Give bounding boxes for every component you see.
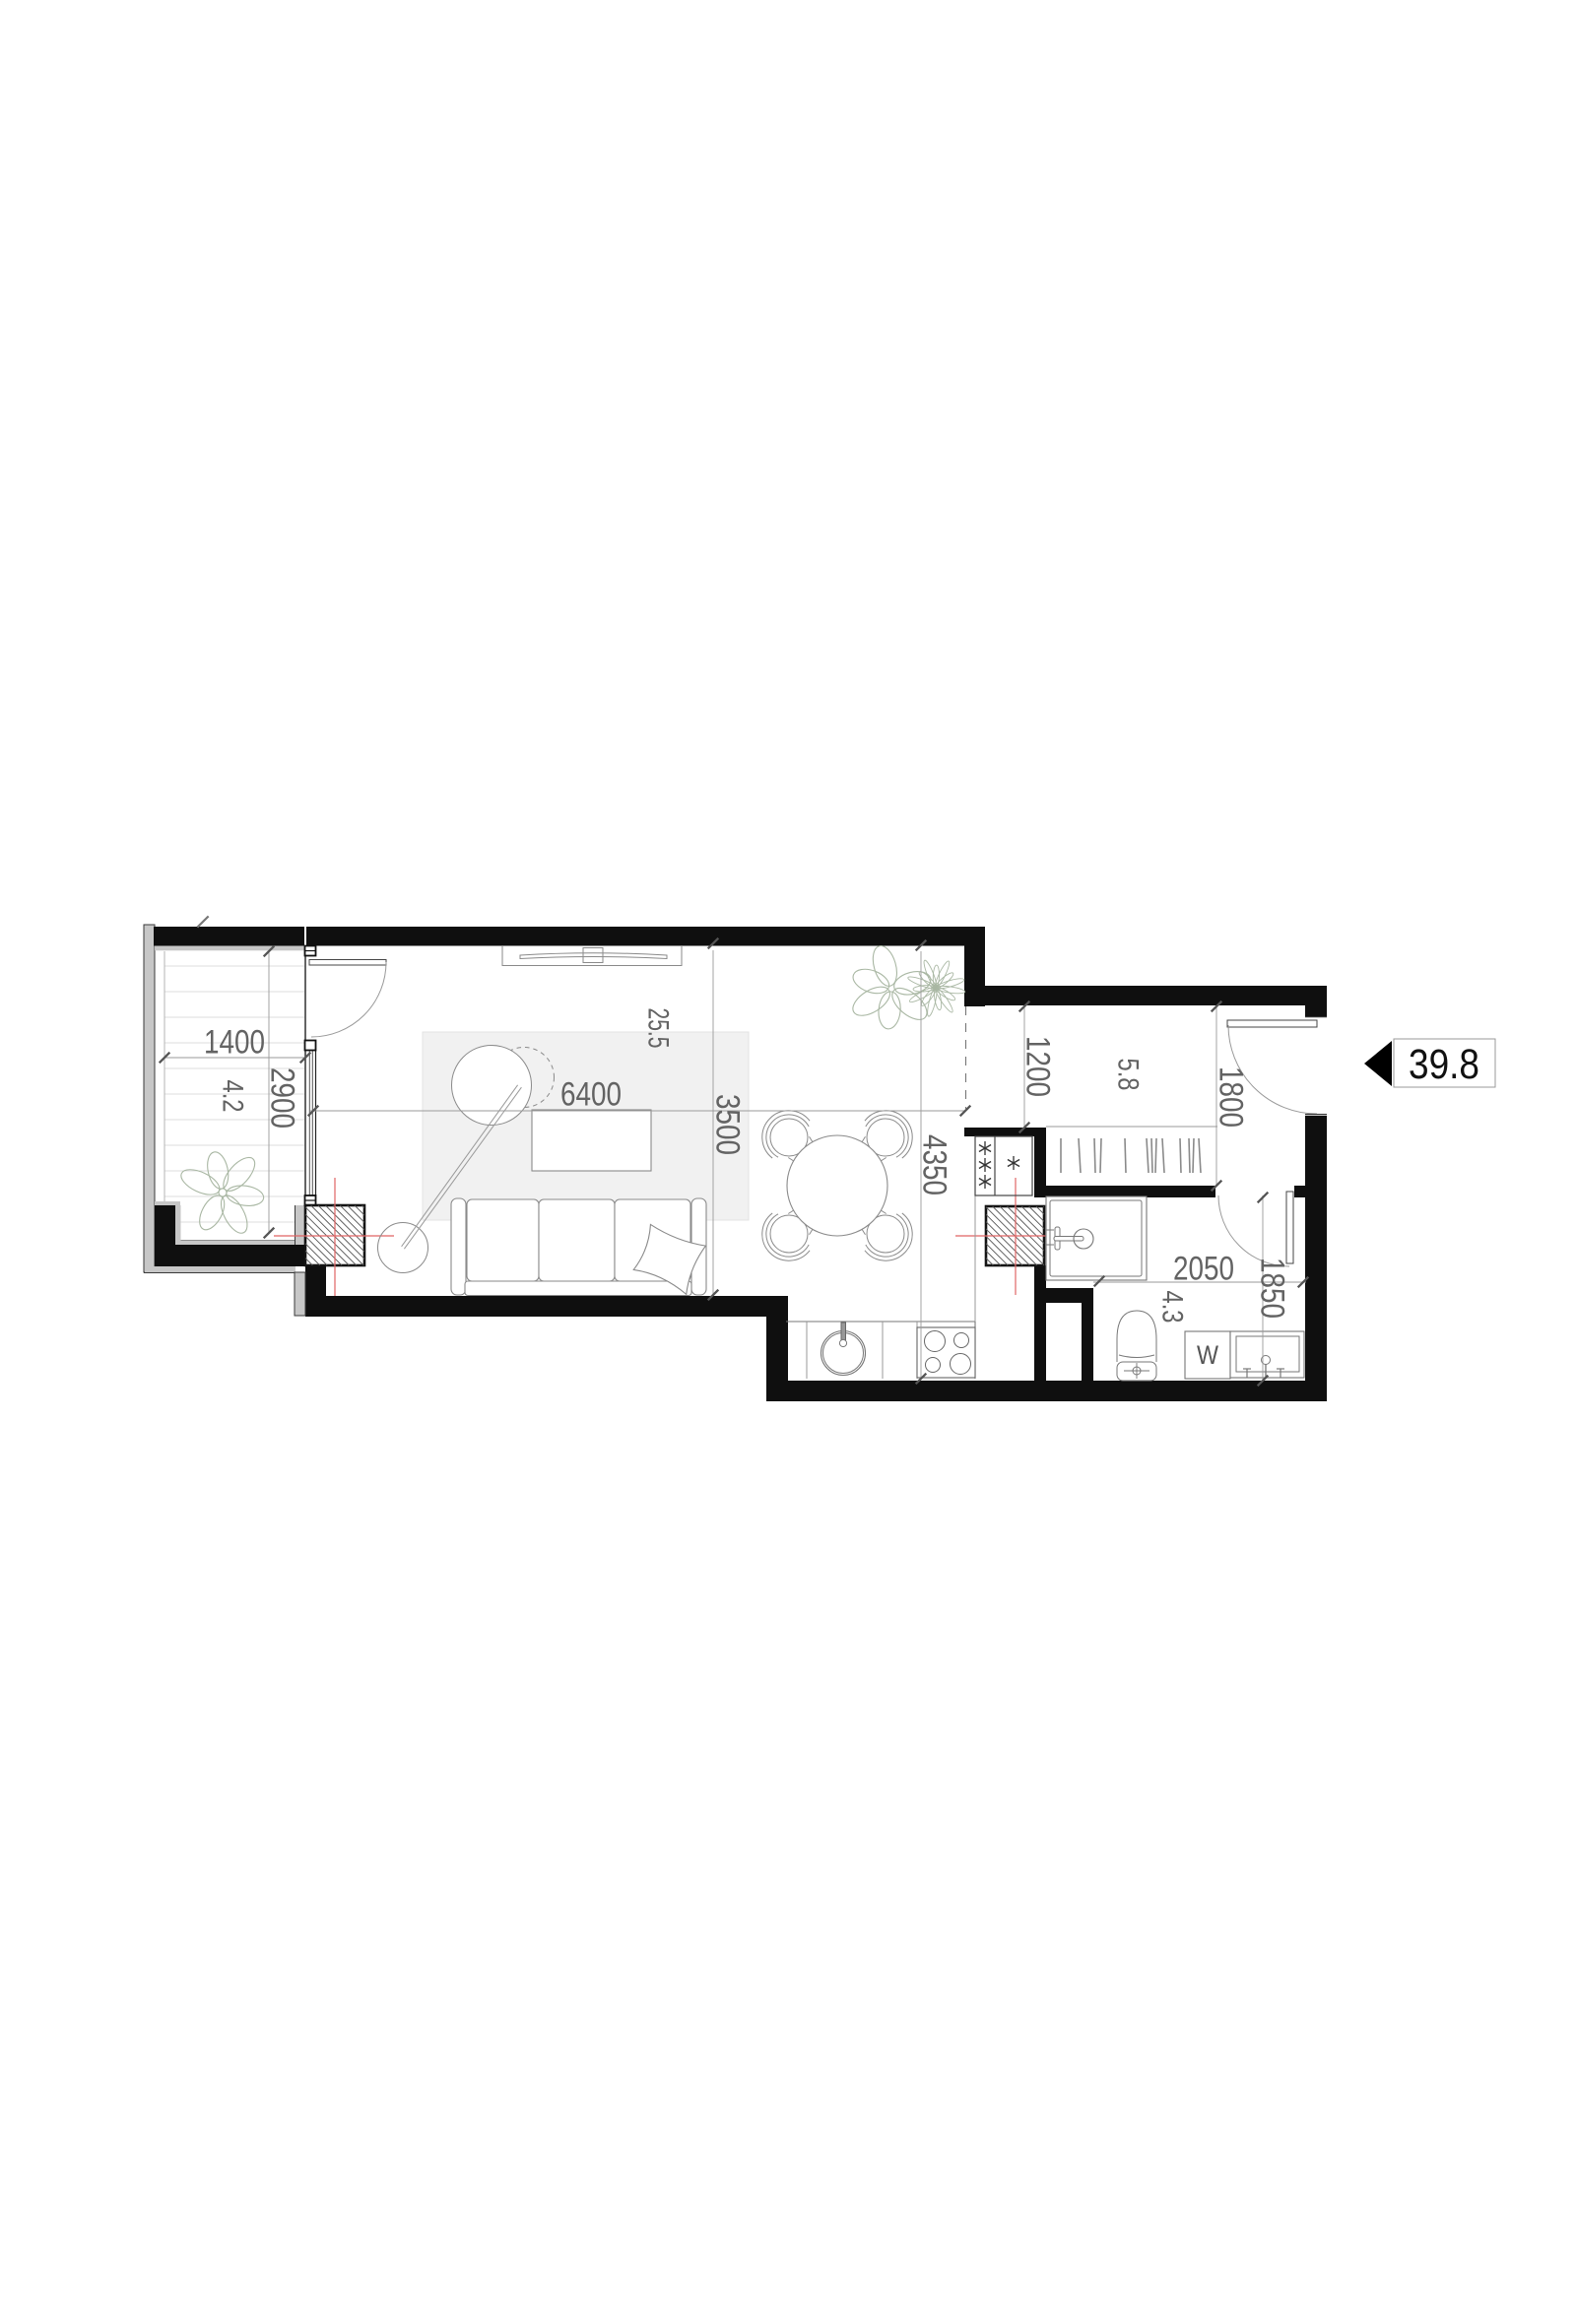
svg-text:6400: 6400 xyxy=(560,1076,622,1114)
svg-text:1200: 1200 xyxy=(1018,1036,1056,1097)
svg-text:4.3: 4.3 xyxy=(1156,1291,1189,1323)
svg-text:4350: 4350 xyxy=(915,1134,952,1195)
svg-text:2900: 2900 xyxy=(263,1067,300,1129)
svg-text:3500: 3500 xyxy=(708,1094,746,1155)
svg-text:39.8: 39.8 xyxy=(1409,1041,1479,1088)
svg-text:1850: 1850 xyxy=(1253,1258,1290,1319)
svg-text:1400: 1400 xyxy=(204,1024,265,1062)
svg-text:4.2: 4.2 xyxy=(217,1080,249,1113)
svg-text:5.8: 5.8 xyxy=(1112,1059,1145,1091)
svg-text:25.5: 25.5 xyxy=(642,1008,675,1049)
svg-text:2050: 2050 xyxy=(1173,1251,1234,1288)
svg-text:W: W xyxy=(1197,1340,1218,1370)
svg-text:1800: 1800 xyxy=(1212,1066,1249,1128)
